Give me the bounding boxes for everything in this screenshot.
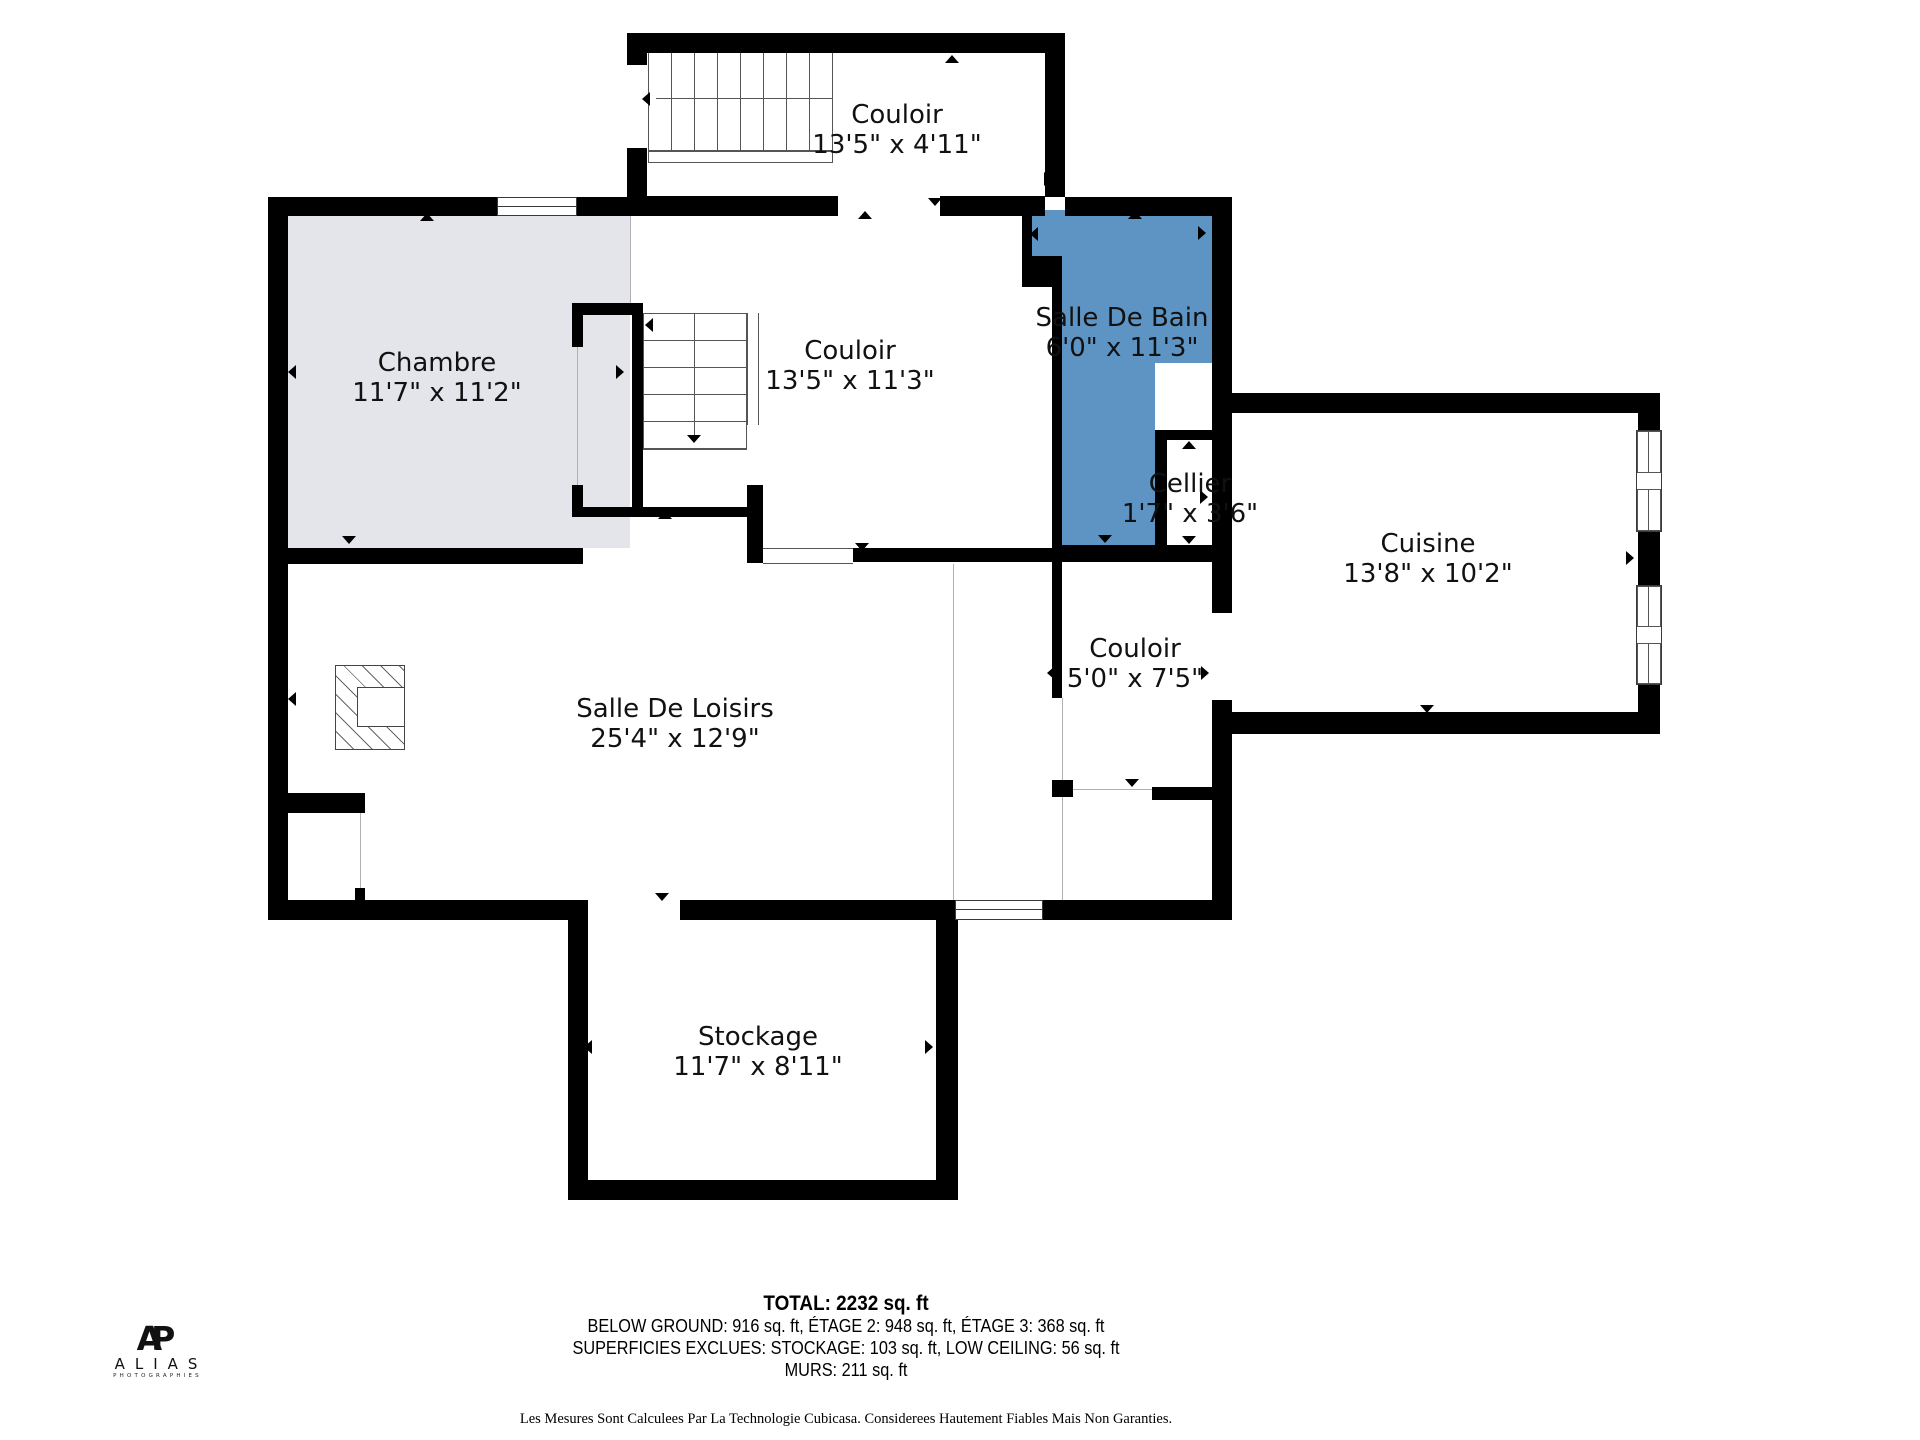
wall xyxy=(632,303,643,517)
room-name: Couloir xyxy=(747,100,1047,130)
room-dims: 5'0" x 7'5" xyxy=(985,664,1285,694)
room-name: Couloir xyxy=(700,336,1000,366)
wall xyxy=(853,548,1062,562)
dimension-arrow xyxy=(751,1182,765,1190)
room-name: Chambre xyxy=(287,348,587,378)
room-dims: 13'5" x 4'11" xyxy=(747,130,1047,160)
open-boundary-line xyxy=(630,216,631,303)
dimension-arrow xyxy=(1128,211,1142,219)
alias-logo: AP ALIAS PHOTOGRAPHIES xyxy=(96,1322,216,1380)
window-sash xyxy=(1637,643,1661,684)
logo-name: ALIAS xyxy=(96,1356,216,1373)
room-label-chambre: Chambre 11'7" x 11'2" xyxy=(287,348,587,408)
dimension-arrow xyxy=(1125,779,1139,787)
stair-arrow xyxy=(687,435,701,443)
dimension-arrow xyxy=(616,365,624,379)
wall xyxy=(940,196,1045,216)
dimension-arrow xyxy=(420,213,434,221)
wall xyxy=(627,33,647,65)
stair-direction-line xyxy=(694,313,695,435)
wall xyxy=(1212,197,1232,613)
room-name: Stockage xyxy=(608,1022,908,1052)
room-label-salle-de-loisirs: Salle De Loisirs 25'4" x 12'9" xyxy=(525,694,825,754)
logo-tagline: PHOTOGRAPHIES xyxy=(96,1373,216,1380)
door-opening xyxy=(763,548,853,564)
room-dims: 13'5" x 11'3" xyxy=(700,366,1000,396)
excluded-areas: SUPERFICIES EXCLUES: STOCKAGE: 103 sq. f… xyxy=(406,1337,1286,1359)
wall xyxy=(268,793,365,813)
wall xyxy=(1043,900,1232,920)
dimension-arrow xyxy=(855,543,869,551)
fireplace-notch xyxy=(357,687,405,727)
dimension-arrow xyxy=(1420,401,1434,409)
dimension-arrow xyxy=(1420,705,1434,713)
window xyxy=(497,197,577,216)
dimension-arrow xyxy=(1626,551,1634,565)
wall xyxy=(647,196,838,216)
dimension-arrow xyxy=(1182,441,1196,449)
room-dims: 25'4" x 12'9" xyxy=(525,724,825,754)
dimension-arrow xyxy=(1198,226,1206,240)
room-label-couloir-bas: Couloir 5'0" x 7'5" xyxy=(985,634,1285,694)
room-label-cellier: Cellier 1'7" x 3'6" xyxy=(1040,469,1340,529)
window-sash xyxy=(1637,431,1661,473)
wall xyxy=(1232,712,1660,734)
room-dims: 6'0" x 11'3" xyxy=(972,333,1272,363)
area-summary: TOTAL: 2232 sq. ft BELOW GROUND: 916 sq.… xyxy=(346,1292,1346,1428)
wall xyxy=(936,920,958,1200)
dimension-arrow xyxy=(636,172,644,186)
dimension-arrow xyxy=(945,55,959,63)
dimension-arrow xyxy=(1030,227,1038,241)
stair-arrow xyxy=(642,92,650,106)
floor-areas: BELOW GROUND: 916 sq. ft, ÉTAGE 2: 948 s… xyxy=(406,1315,1286,1337)
dimension-arrow xyxy=(658,511,672,519)
wall xyxy=(1065,197,1232,216)
wall xyxy=(680,900,955,920)
open-boundary-line xyxy=(1073,789,1153,790)
window xyxy=(955,900,1043,920)
wall xyxy=(1052,780,1073,797)
wall xyxy=(1232,393,1660,413)
window-sash xyxy=(1637,586,1661,627)
wall xyxy=(268,548,583,564)
wall xyxy=(627,33,1065,53)
disclaimer: Les Mesures Sont Calculees Par La Techno… xyxy=(346,1411,1346,1428)
wall xyxy=(572,315,583,347)
wall xyxy=(1152,787,1213,800)
wall xyxy=(268,900,570,920)
dimension-arrow xyxy=(1182,536,1196,544)
floor-plan: Couloir 13'5" x 4'11" Chambre 11'7" x 11… xyxy=(0,0,1920,1440)
room-name: Salle De Loisirs xyxy=(525,694,825,724)
window xyxy=(1636,430,1662,532)
wall xyxy=(1062,545,1212,562)
open-boundary-line xyxy=(953,564,954,903)
logo-monogram: AP xyxy=(96,1322,216,1356)
room-name: Cuisine xyxy=(1278,529,1578,559)
room-label-couloir-milieu: Couloir 13'5" x 11'3" xyxy=(700,336,1000,396)
dimension-arrow xyxy=(342,536,356,544)
room-name: Cellier xyxy=(1040,469,1340,499)
room-name: Salle De Bain xyxy=(972,303,1272,333)
open-boundary-line xyxy=(360,813,361,889)
room-label-couloir-haut: Couloir 13'5" x 4'11" xyxy=(747,100,1047,160)
room-label-salle-de-bain: Salle De Bain 6'0" x 11'3" xyxy=(972,303,1272,363)
stair-direction-line xyxy=(656,98,833,99)
dimension-arrow xyxy=(1044,172,1052,186)
wall xyxy=(1022,256,1062,287)
floor-plan-page: Couloir 13'5" x 4'11" Chambre 11'7" x 11… xyxy=(0,0,1920,1440)
dimension-arrow xyxy=(928,198,942,206)
room-dims: 1'7" x 3'6" xyxy=(1040,499,1340,529)
dimension-arrow xyxy=(655,893,669,901)
room-name: Couloir xyxy=(985,634,1285,664)
room-dims: 13'8" x 10'2" xyxy=(1278,559,1578,589)
room-label-stockage: Stockage 11'7" x 8'11" xyxy=(608,1022,908,1082)
wall xyxy=(355,803,365,813)
open-boundary-line xyxy=(1062,698,1063,904)
dimension-arrow xyxy=(1098,535,1112,543)
window-sash xyxy=(1637,489,1661,531)
dimension-arrow xyxy=(584,1040,592,1054)
walls-area: MURS: 211 sq. ft xyxy=(406,1359,1286,1381)
dimension-arrow xyxy=(288,692,296,706)
room-dims: 11'7" x 8'11" xyxy=(608,1052,908,1082)
window xyxy=(1636,585,1662,685)
total-area: TOTAL: 2232 sq. ft xyxy=(396,1292,1296,1315)
wall xyxy=(1212,700,1232,920)
room-label-cuisine: Cuisine 13'8" x 10'2" xyxy=(1278,529,1578,589)
wall xyxy=(747,485,763,563)
dimension-arrow xyxy=(925,1040,933,1054)
dimension-arrow xyxy=(858,211,872,219)
dimension-arrow xyxy=(645,318,653,332)
room-dims: 11'7" x 11'2" xyxy=(287,378,587,408)
